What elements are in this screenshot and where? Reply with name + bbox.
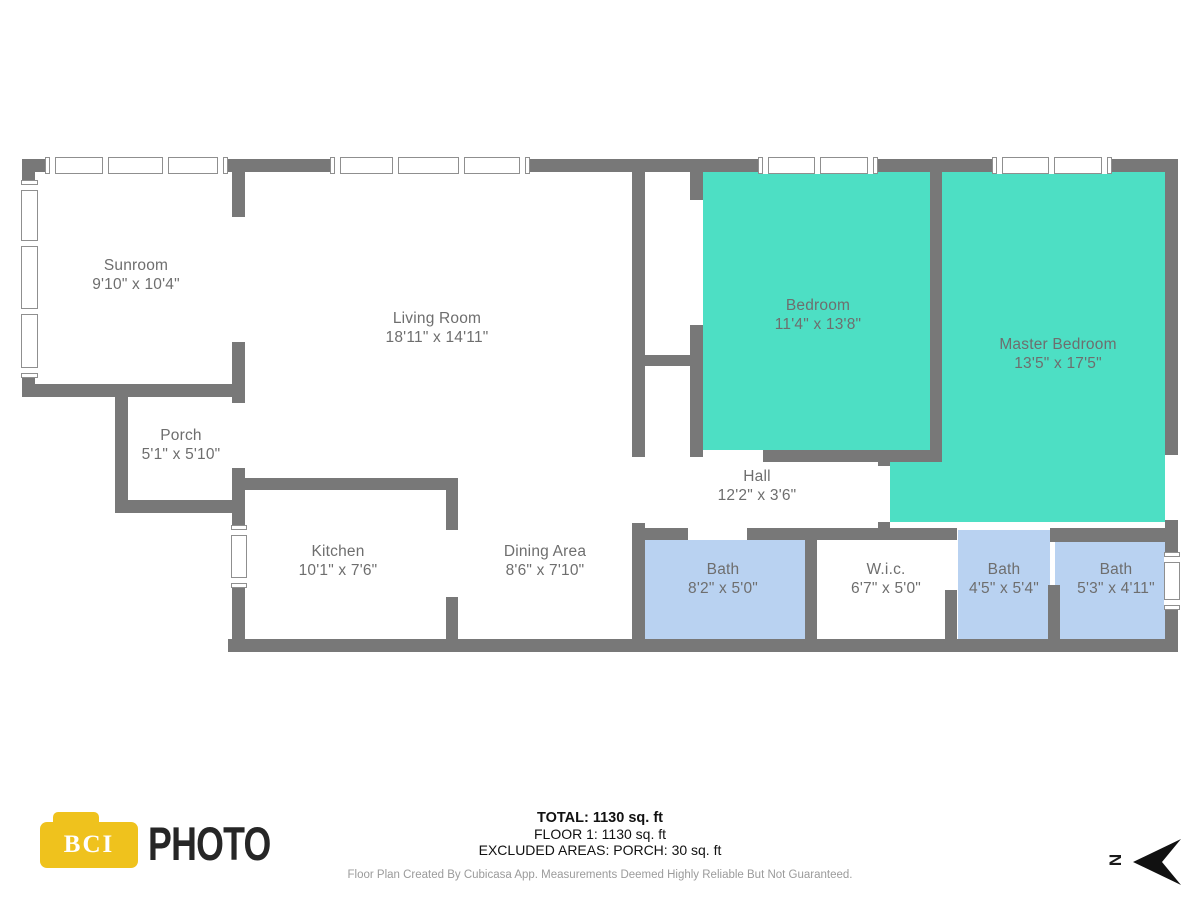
room-label-bath-2: Bath 4'5" x 5'4" xyxy=(969,561,1039,599)
room-dims: 4'5" x 5'4" xyxy=(969,580,1039,599)
room-label-hall: Hall 12'2" x 3'6" xyxy=(718,468,797,506)
room-name: W.i.c. xyxy=(851,561,921,580)
wall-exterior-bottom xyxy=(228,639,1178,652)
excluded-area-text: EXCLUDED AREAS: PORCH: 30 sq. ft xyxy=(0,842,1200,858)
wall-kitchen-right-upper xyxy=(446,478,458,530)
room-dims: 8'2" x 5'0" xyxy=(688,580,758,599)
room-name: Living Room xyxy=(386,310,489,329)
room-dims: 8'6" x 7'10" xyxy=(504,562,586,581)
room-name: Hall xyxy=(718,468,797,487)
wall-wic-left xyxy=(805,538,817,640)
wall-kitchen-right-lower xyxy=(446,597,458,652)
room-label-bath-3: Bath 5'3" x 4'11" xyxy=(1077,561,1155,599)
wall-exterior-right-upper xyxy=(1165,159,1178,455)
room-dims: 6'7" x 5'0" xyxy=(851,580,921,599)
wall-kitchen-top xyxy=(232,478,458,490)
room-label-porch: Porch 5'1" x 5'10" xyxy=(142,427,221,465)
wall-sunroom-right-lower xyxy=(232,342,245,403)
wall-hall-bottom-right xyxy=(747,528,957,540)
room-dims: 10'1" x 7'6" xyxy=(299,562,378,581)
wall-bath-divider xyxy=(1048,585,1060,652)
wall-hall-stub-upper xyxy=(878,452,890,466)
room-dims: 5'3" x 4'11" xyxy=(1077,580,1155,599)
wall-wic-right xyxy=(945,590,957,652)
wall-living-east-lower xyxy=(632,523,645,652)
wall-bedroom-west-lower xyxy=(690,325,703,457)
wall-bedroom-west-upper xyxy=(690,165,703,200)
room-name: Master Bedroom xyxy=(999,336,1116,355)
room-label-wic: W.i.c. 6'7" x 5'0" xyxy=(851,561,921,599)
wall-sunroom-bottom xyxy=(22,384,245,397)
room-dims: 11'4" x 13'8" xyxy=(775,316,861,335)
room-name: Bedroom xyxy=(775,297,861,316)
room-dims: 12'2" x 3'6" xyxy=(718,487,797,506)
window-bedroom-top xyxy=(758,157,878,174)
window-sunroom-left xyxy=(21,180,38,378)
room-name: Sunroom xyxy=(92,257,180,276)
master-bedroom-entry-area xyxy=(890,462,942,522)
room-name: Porch xyxy=(142,427,221,446)
wall-bedroom-master-divider xyxy=(930,165,942,462)
room-dims: 13'5" x 17'5" xyxy=(999,355,1116,374)
wall-living-east-upper xyxy=(632,165,645,457)
floor-plan-page: Sunroom 9'10" x 10'4" Living Room 18'11"… xyxy=(0,0,1200,900)
window-bath3-right xyxy=(1164,552,1180,610)
wall-bedroom-bottom xyxy=(763,450,942,462)
window-living-top xyxy=(330,157,530,174)
room-label-sunroom: Sunroom 9'10" x 10'4" xyxy=(92,257,180,295)
room-name: Bath xyxy=(1077,561,1155,580)
window-sunroom-top xyxy=(45,157,228,174)
room-label-bedroom: Bedroom 11'4" x 13'8" xyxy=(775,297,861,335)
room-label-living-room: Living Room 18'11" x 14'11" xyxy=(386,310,489,348)
north-arrow-icon xyxy=(1133,839,1181,886)
disclaimer-text: Floor Plan Created By Cubicasa App. Meas… xyxy=(0,869,1200,881)
room-name: Bath xyxy=(688,561,758,580)
total-area-text: TOTAL: 1130 sq. ft xyxy=(0,810,1200,826)
area-summary: TOTAL: 1130 sq. ft FLOOR 1: 1130 sq. ft … xyxy=(0,810,1200,881)
window-master-top xyxy=(992,157,1112,174)
compass-north-label: N xyxy=(1106,854,1126,866)
floor-area-text: FLOOR 1: 1130 sq. ft xyxy=(0,826,1200,842)
window-kitchen-west xyxy=(231,525,247,588)
wall-hall-bottom-left xyxy=(632,528,688,540)
room-dims: 18'11" x 14'11" xyxy=(386,329,489,348)
wall-sunroom-right-upper xyxy=(232,172,245,217)
wall-bath3-top xyxy=(1050,528,1165,542)
room-label-master-bedroom: Master Bedroom 13'5" x 17'5" xyxy=(999,336,1116,374)
room-label-bath-1: Bath 8'2" x 5'0" xyxy=(688,561,758,599)
wall-porch-left xyxy=(115,390,128,512)
room-dims: 9'10" x 10'4" xyxy=(92,276,180,295)
room-label-dining-area: Dining Area 8'6" x 7'10" xyxy=(504,543,586,581)
room-dims: 5'1" x 5'10" xyxy=(142,446,221,465)
room-label-kitchen: Kitchen 10'1" x 7'6" xyxy=(299,543,378,581)
room-name: Bath xyxy=(969,561,1039,580)
room-name: Kitchen xyxy=(299,543,378,562)
wall-porch-bottom xyxy=(115,500,233,513)
room-name: Dining Area xyxy=(504,543,586,562)
